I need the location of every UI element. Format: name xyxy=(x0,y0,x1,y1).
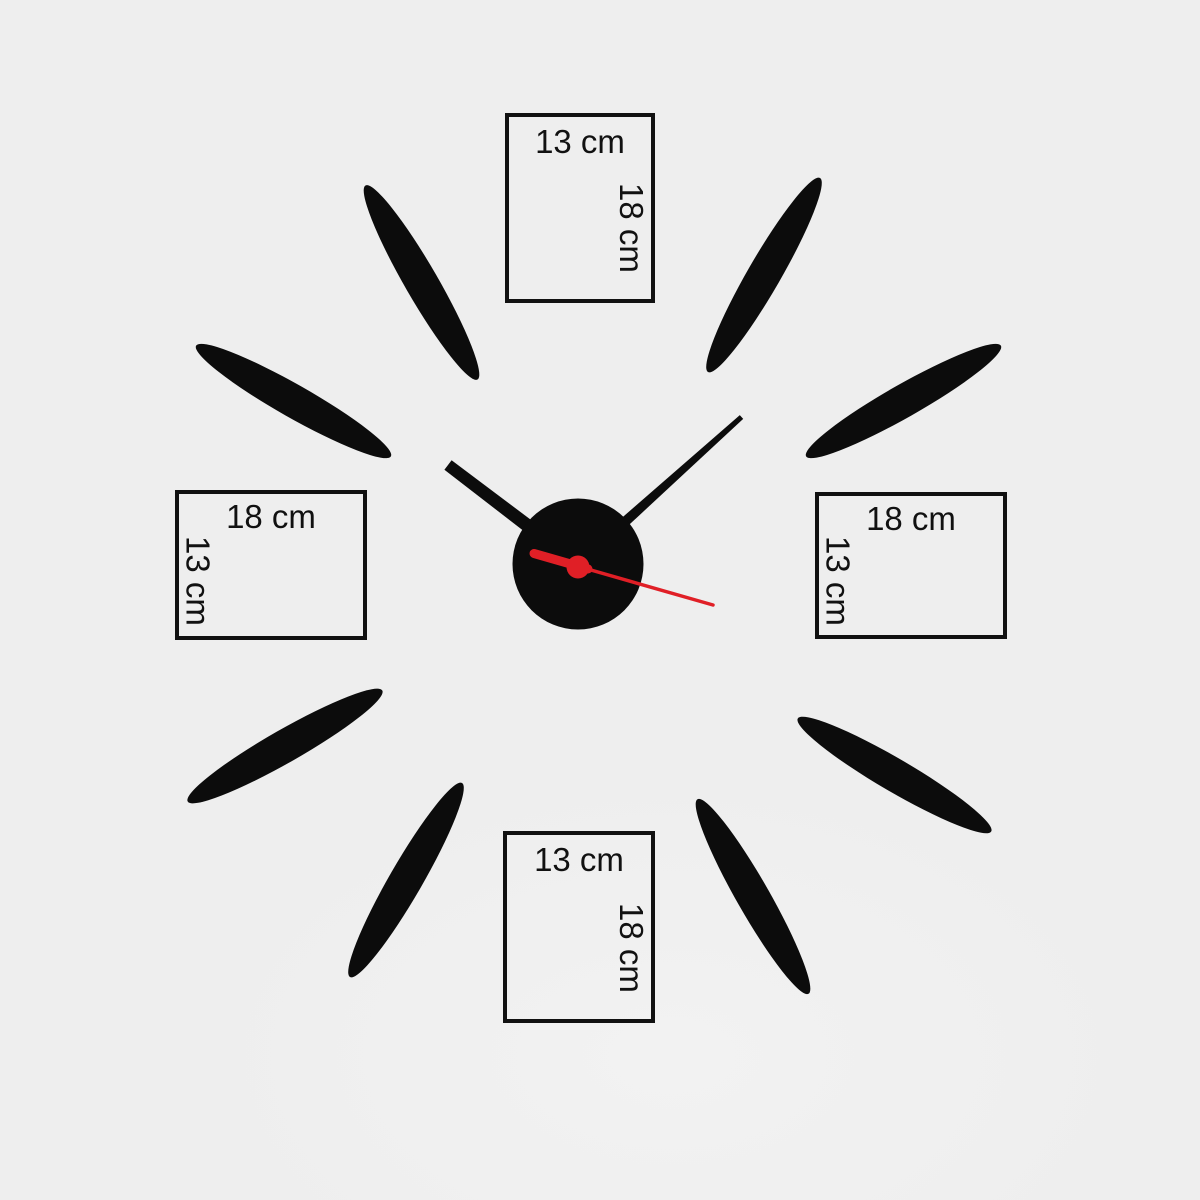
dimension-label-height: 13 cm xyxy=(180,536,215,626)
dimension-label-width: 13 cm xyxy=(507,843,651,878)
dimension-label-width: 18 cm xyxy=(819,502,1003,537)
clock-ray-10-oclock xyxy=(188,331,399,470)
clock-ray-11-oclock xyxy=(351,177,492,387)
dimension-box-right: 18 cm 13 cm xyxy=(815,492,1007,639)
clock-ray-7-oclock xyxy=(336,775,477,985)
clock-ray-2-oclock xyxy=(798,331,1009,470)
clock-ray-1-oclock xyxy=(694,170,835,380)
second-hand-cap xyxy=(567,556,590,579)
clock-ray-5-oclock xyxy=(683,791,823,1002)
dimension-label-width: 13 cm xyxy=(509,125,651,160)
dimension-label-width: 18 cm xyxy=(179,500,363,535)
dimension-label-height: 18 cm xyxy=(613,183,648,273)
clock-ray-8-oclock xyxy=(180,676,391,816)
clock-ray-4-oclock xyxy=(789,704,999,846)
dimension-box-top: 13 cm 18 cm xyxy=(505,113,655,303)
dimension-label-height: 18 cm xyxy=(613,903,648,993)
dimension-box-bottom: 13 cm 18 cm xyxy=(503,831,655,1023)
clock-sticker-dimension-diagram: 13 cm 18 cm 18 cm 13 cm 18 cm 13 cm 13 c… xyxy=(0,0,1200,1200)
dimension-box-left: 18 cm 13 cm xyxy=(175,490,367,640)
dimension-label-height: 13 cm xyxy=(820,536,855,626)
